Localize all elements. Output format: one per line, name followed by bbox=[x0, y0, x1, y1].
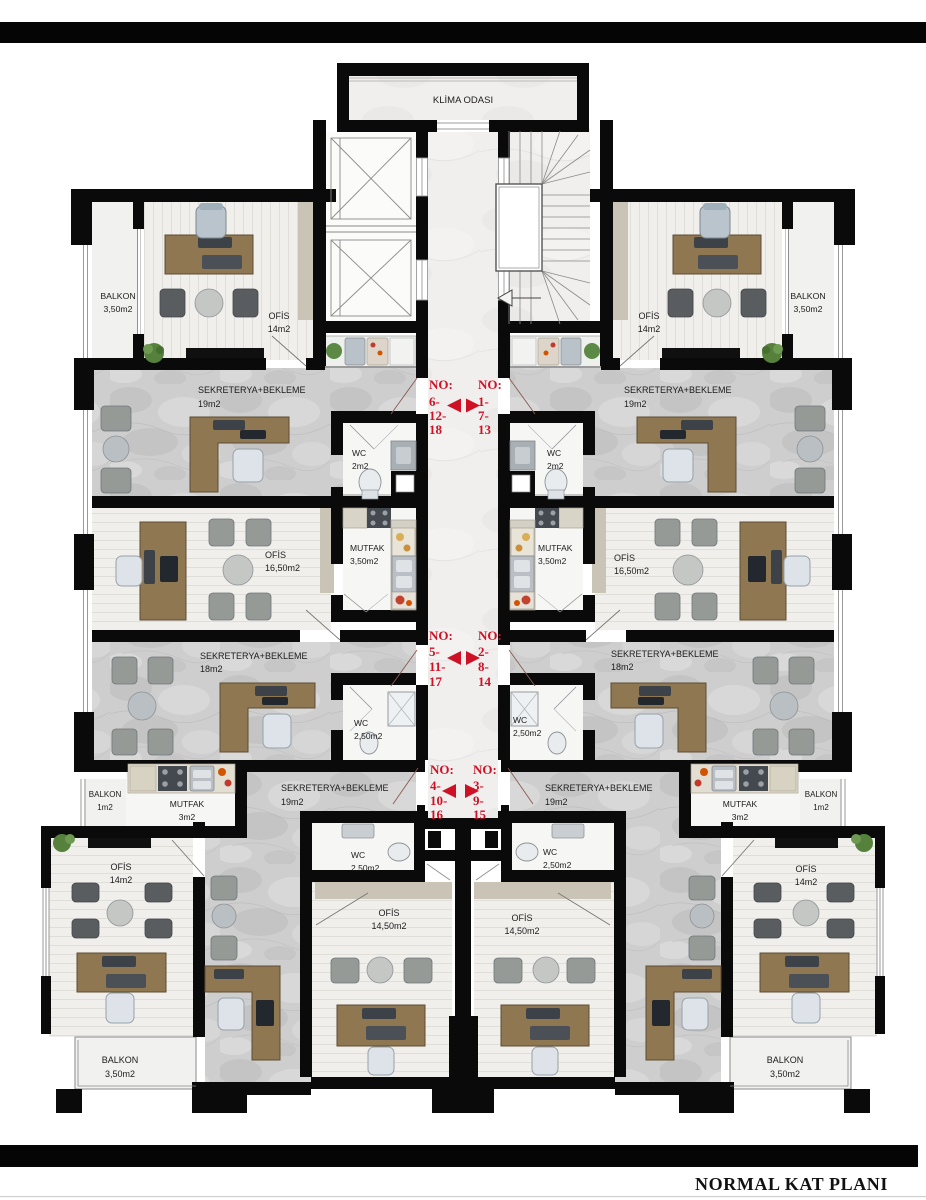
svg-text:19m2: 19m2 bbox=[281, 797, 304, 807]
svg-text:14m2: 14m2 bbox=[268, 324, 291, 334]
svg-text:MUTFAK: MUTFAK bbox=[723, 799, 758, 809]
svg-text:MUTFAK: MUTFAK bbox=[170, 799, 205, 809]
svg-text:NO:: NO: bbox=[478, 628, 502, 643]
svg-text:WC: WC bbox=[352, 448, 366, 458]
svg-text:BALKON: BALKON bbox=[102, 1055, 139, 1065]
svg-text:10-: 10- bbox=[430, 793, 447, 808]
svg-text:14m2: 14m2 bbox=[638, 324, 661, 334]
svg-text:OFİS: OFİS bbox=[110, 862, 131, 872]
svg-text:19m2: 19m2 bbox=[545, 797, 568, 807]
svg-text:18m2: 18m2 bbox=[200, 664, 223, 674]
svg-text:3,50m2: 3,50m2 bbox=[350, 556, 379, 566]
svg-text:MUTFAK: MUTFAK bbox=[538, 543, 573, 553]
svg-text:NO:: NO: bbox=[430, 762, 454, 777]
svg-text:WC: WC bbox=[547, 448, 561, 458]
svg-text:NO:: NO: bbox=[429, 377, 453, 392]
svg-text:7-: 7- bbox=[478, 408, 489, 423]
svg-text:14m2: 14m2 bbox=[795, 877, 818, 887]
svg-text:3,50m2: 3,50m2 bbox=[105, 1069, 135, 1079]
svg-text:SEKRETERYA+BEKLEME: SEKRETERYA+BEKLEME bbox=[198, 385, 305, 395]
svg-text:SEKRETERYA+BEKLEME: SEKRETERYA+BEKLEME bbox=[611, 649, 718, 659]
svg-text:WC: WC bbox=[513, 715, 527, 725]
svg-text:BALKON: BALKON bbox=[89, 790, 122, 799]
svg-text:3,50m2: 3,50m2 bbox=[104, 304, 133, 314]
svg-text:14m2: 14m2 bbox=[110, 875, 133, 885]
svg-text:14,50m2: 14,50m2 bbox=[504, 926, 539, 936]
svg-text:2,50m2: 2,50m2 bbox=[543, 860, 572, 870]
svg-text:WC: WC bbox=[351, 850, 365, 860]
svg-text:KLİMA ODASI: KLİMA ODASI bbox=[433, 95, 493, 106]
svg-text:19m2: 19m2 bbox=[624, 399, 647, 409]
svg-text:13: 13 bbox=[478, 422, 492, 437]
svg-text:OFİS: OFİS bbox=[378, 908, 399, 918]
svg-text:3,50m2: 3,50m2 bbox=[794, 304, 823, 314]
svg-text:SEKRETERYA+BEKLEME: SEKRETERYA+BEKLEME bbox=[200, 651, 307, 661]
svg-text:14: 14 bbox=[478, 674, 492, 689]
svg-text:1m2: 1m2 bbox=[97, 803, 113, 812]
svg-text:2,50m2: 2,50m2 bbox=[354, 731, 383, 741]
svg-text:16,50m2: 16,50m2 bbox=[614, 566, 649, 576]
svg-text:5-: 5- bbox=[429, 644, 440, 659]
svg-text:2,50m2: 2,50m2 bbox=[351, 863, 380, 873]
svg-text:NO:: NO: bbox=[429, 628, 453, 643]
svg-text:9-: 9- bbox=[473, 793, 484, 808]
svg-text:BALKON: BALKON bbox=[805, 790, 838, 799]
svg-text:SEKRETERYA+BEKLEME: SEKRETERYA+BEKLEME bbox=[281, 783, 388, 793]
svg-text:1m2: 1m2 bbox=[813, 803, 829, 812]
svg-text:19m2: 19m2 bbox=[198, 399, 221, 409]
svg-text:OFİS: OFİS bbox=[638, 311, 659, 321]
svg-text:16,50m2: 16,50m2 bbox=[265, 563, 300, 573]
svg-text:15: 15 bbox=[473, 807, 487, 822]
svg-text:8-: 8- bbox=[478, 659, 489, 674]
svg-text:3,50m2: 3,50m2 bbox=[770, 1069, 800, 1079]
svg-text:OFİS: OFİS bbox=[511, 913, 532, 923]
svg-text:3,50m2: 3,50m2 bbox=[538, 556, 567, 566]
svg-text:6-: 6- bbox=[429, 394, 440, 409]
svg-text:OFİS: OFİS bbox=[268, 311, 289, 321]
svg-text:17: 17 bbox=[429, 674, 443, 689]
svg-text:16: 16 bbox=[430, 807, 444, 822]
svg-text:2-: 2- bbox=[478, 644, 489, 659]
svg-text:OFİS: OFİS bbox=[265, 550, 286, 560]
svg-text:2m2: 2m2 bbox=[547, 461, 564, 471]
svg-text:18m2: 18m2 bbox=[611, 662, 634, 672]
svg-text:MUTFAK: MUTFAK bbox=[350, 543, 385, 553]
svg-text:OFİS: OFİS bbox=[795, 864, 816, 874]
svg-text:BALKON: BALKON bbox=[767, 1055, 804, 1065]
svg-text:NORMAL KAT PLANI: NORMAL KAT PLANI bbox=[695, 1174, 888, 1194]
svg-text:SEKRETERYA+BEKLEME: SEKRETERYA+BEKLEME bbox=[545, 783, 652, 793]
svg-text:1-: 1- bbox=[478, 394, 489, 409]
svg-text:2m2: 2m2 bbox=[352, 461, 369, 471]
svg-text:NO:: NO: bbox=[473, 762, 497, 777]
svg-text:3m2: 3m2 bbox=[179, 812, 196, 822]
svg-text:BALKON: BALKON bbox=[790, 291, 825, 301]
svg-text:WC: WC bbox=[543, 847, 557, 857]
svg-text:11-: 11- bbox=[429, 659, 446, 674]
svg-text:BALKON: BALKON bbox=[100, 291, 135, 301]
svg-text:14,50m2: 14,50m2 bbox=[371, 921, 406, 931]
svg-text:3m2: 3m2 bbox=[732, 812, 749, 822]
svg-text:SEKRETERYA+BEKLEME: SEKRETERYA+BEKLEME bbox=[624, 385, 731, 395]
svg-text:2,50m2: 2,50m2 bbox=[513, 728, 542, 738]
svg-text:12-: 12- bbox=[429, 408, 446, 423]
svg-text:OFİS: OFİS bbox=[614, 553, 635, 563]
svg-text:4-: 4- bbox=[430, 778, 441, 793]
svg-text:18: 18 bbox=[429, 422, 443, 437]
svg-text:NO:: NO: bbox=[478, 377, 502, 392]
svg-text:WC: WC bbox=[354, 718, 368, 728]
